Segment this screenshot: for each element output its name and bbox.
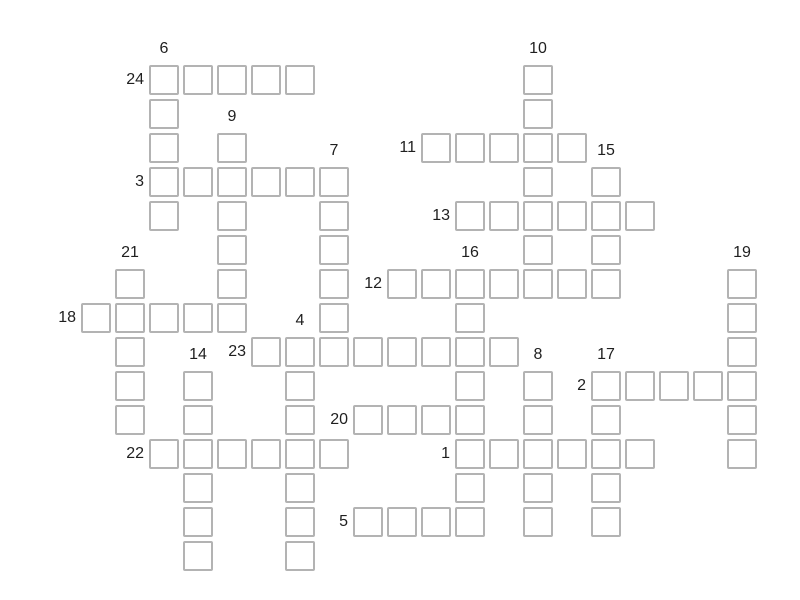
crossword-cell[interactable]: [251, 439, 281, 469]
crossword-cell[interactable]: [251, 337, 281, 367]
clue-number-19: 19: [727, 242, 757, 264]
crossword-cell[interactable]: [115, 371, 145, 401]
clue-number-13: 13: [390, 205, 450, 227]
crossword-cell[interactable]: [149, 65, 179, 95]
crossword-cell[interactable]: [217, 201, 247, 231]
crossword-cell[interactable]: [591, 473, 621, 503]
crossword-cell[interactable]: [81, 303, 111, 333]
crossword-cell[interactable]: [591, 167, 621, 197]
crossword-cell[interactable]: [523, 133, 553, 163]
crossword-cell[interactable]: [217, 303, 247, 333]
clue-number-8: 8: [523, 344, 553, 366]
crossword-cell[interactable]: [217, 235, 247, 265]
crossword-cell[interactable]: [183, 473, 213, 503]
crossword-cell[interactable]: [319, 303, 349, 333]
crossword-cell[interactable]: [183, 405, 213, 435]
crossword-cell[interactable]: [285, 439, 315, 469]
crossword-cell[interactable]: [489, 201, 519, 231]
crossword-cell[interactable]: [319, 167, 349, 197]
crossword-cell[interactable]: [455, 269, 485, 299]
crossword-cell[interactable]: [149, 303, 179, 333]
crossword-cell[interactable]: [353, 507, 383, 537]
clue-number-5: 5: [288, 511, 348, 533]
crossword-cell[interactable]: [421, 405, 451, 435]
crossword-cell[interactable]: [591, 405, 621, 435]
clue-number-17: 17: [591, 344, 621, 366]
crossword-cell[interactable]: [149, 167, 179, 197]
crossword-cell[interactable]: [489, 439, 519, 469]
crossword-cell[interactable]: [455, 507, 485, 537]
crossword-cell[interactable]: [591, 201, 621, 231]
crossword-cell[interactable]: [557, 201, 587, 231]
crossword-cell[interactable]: [455, 303, 485, 333]
crossword-cell[interactable]: [591, 235, 621, 265]
crossword-cell[interactable]: [455, 133, 485, 163]
clue-number-21: 21: [115, 242, 145, 264]
crossword-cell[interactable]: [421, 269, 451, 299]
crossword-cell[interactable]: [523, 65, 553, 95]
clue-number-1: 1: [390, 443, 450, 465]
clue-number-15: 15: [591, 140, 621, 162]
crossword-cell[interactable]: [727, 439, 757, 469]
crossword-cell[interactable]: [421, 133, 451, 163]
crossword-cell[interactable]: [149, 201, 179, 231]
crossword-cell[interactable]: [523, 167, 553, 197]
crossword-cell[interactable]: [727, 405, 757, 435]
crossword-cell[interactable]: [115, 405, 145, 435]
crossword-cell[interactable]: [387, 405, 417, 435]
crossword-cell[interactable]: [523, 99, 553, 129]
crossword-cell[interactable]: [625, 439, 655, 469]
clue-number-23: 23: [186, 341, 246, 363]
crossword-cell[interactable]: [319, 201, 349, 231]
crossword-cell[interactable]: [217, 269, 247, 299]
crossword-cell[interactable]: [523, 235, 553, 265]
crossword-cell[interactable]: [183, 439, 213, 469]
crossword-cell[interactable]: [319, 439, 349, 469]
crossword-cell[interactable]: [183, 371, 213, 401]
crossword-cell[interactable]: [319, 337, 349, 367]
crossword-cell[interactable]: [183, 303, 213, 333]
crossword-cell[interactable]: [251, 65, 281, 95]
crossword-cell[interactable]: [387, 507, 417, 537]
crossword-cell[interactable]: [183, 507, 213, 537]
crossword-cell[interactable]: [319, 235, 349, 265]
crossword-cell[interactable]: [217, 65, 247, 95]
crossword-cell[interactable]: [353, 337, 383, 367]
crossword-cell[interactable]: [489, 337, 519, 367]
crossword-cell[interactable]: [285, 473, 315, 503]
crossword-cell[interactable]: [217, 133, 247, 163]
crossword-cell[interactable]: [149, 133, 179, 163]
crossword-cell[interactable]: [625, 371, 655, 401]
crossword-cell[interactable]: [523, 473, 553, 503]
crossword-cell[interactable]: [455, 201, 485, 231]
crossword-cell[interactable]: [285, 371, 315, 401]
clue-number-20: 20: [288, 409, 348, 431]
crossword-cell[interactable]: [557, 133, 587, 163]
crossword-cell[interactable]: [353, 405, 383, 435]
crossword-cell[interactable]: [421, 337, 451, 367]
crossword-cell[interactable]: [659, 371, 689, 401]
clue-number-24: 24: [84, 69, 144, 91]
clue-number-11: 11: [356, 137, 416, 159]
crossword-cell[interactable]: [217, 167, 247, 197]
clue-number-9: 9: [217, 106, 247, 128]
crossword-cell[interactable]: [387, 337, 417, 367]
crossword-cell[interactable]: [523, 371, 553, 401]
crossword-cell[interactable]: [115, 303, 145, 333]
crossword-cell[interactable]: [285, 337, 315, 367]
crossword-cell[interactable]: [455, 439, 485, 469]
clue-number-10: 10: [523, 38, 553, 60]
crossword-cell[interactable]: [115, 269, 145, 299]
clue-number-22: 22: [84, 443, 144, 465]
crossword-cell[interactable]: [489, 133, 519, 163]
crossword-cell[interactable]: [523, 507, 553, 537]
clue-number-7: 7: [319, 140, 349, 162]
crossword-cell[interactable]: [557, 269, 587, 299]
crossword-cell[interactable]: [285, 65, 315, 95]
crossword-cell[interactable]: [455, 473, 485, 503]
crossword-cell[interactable]: [115, 337, 145, 367]
crossword-cell[interactable]: [149, 99, 179, 129]
crossword-cell[interactable]: [387, 269, 417, 299]
crossword-cell[interactable]: [489, 269, 519, 299]
crossword-cell[interactable]: [285, 541, 315, 571]
clue-number-16: 16: [455, 242, 485, 264]
crossword-cell[interactable]: [421, 507, 451, 537]
crossword-cell[interactable]: [523, 269, 553, 299]
crossword-cell[interactable]: [693, 371, 723, 401]
clue-number-6: 6: [149, 38, 179, 60]
crossword-cell[interactable]: [591, 507, 621, 537]
crossword-cell[interactable]: [285, 167, 315, 197]
crossword-cell[interactable]: [625, 201, 655, 231]
crossword-cell[interactable]: [557, 439, 587, 469]
crossword-cell[interactable]: [455, 405, 485, 435]
clue-number-12: 12: [322, 273, 382, 295]
clue-number-3: 3: [84, 171, 144, 193]
crossword-cell[interactable]: [455, 337, 485, 367]
crossword-cell[interactable]: [591, 439, 621, 469]
crossword-cell[interactable]: [523, 439, 553, 469]
crossword-cell[interactable]: [217, 439, 247, 469]
crossword-cell[interactable]: [183, 65, 213, 95]
crossword-cell[interactable]: [455, 371, 485, 401]
crossword-cell[interactable]: [727, 337, 757, 367]
crossword-cell[interactable]: [149, 439, 179, 469]
crossword-grid: 123456789101112131415161718192021222324: [0, 0, 800, 600]
crossword-cell[interactable]: [591, 371, 621, 401]
clue-number-4: 4: [285, 310, 315, 332]
crossword-cell[interactable]: [523, 201, 553, 231]
crossword-cell[interactable]: [727, 303, 757, 333]
crossword-cell[interactable]: [251, 167, 281, 197]
crossword-cell[interactable]: [183, 167, 213, 197]
crossword-cell[interactable]: [523, 405, 553, 435]
crossword-cell[interactable]: [591, 269, 621, 299]
crossword-cell[interactable]: [727, 371, 757, 401]
crossword-cell[interactable]: [183, 541, 213, 571]
crossword-cell[interactable]: [727, 269, 757, 299]
clue-number-18: 18: [16, 307, 76, 329]
